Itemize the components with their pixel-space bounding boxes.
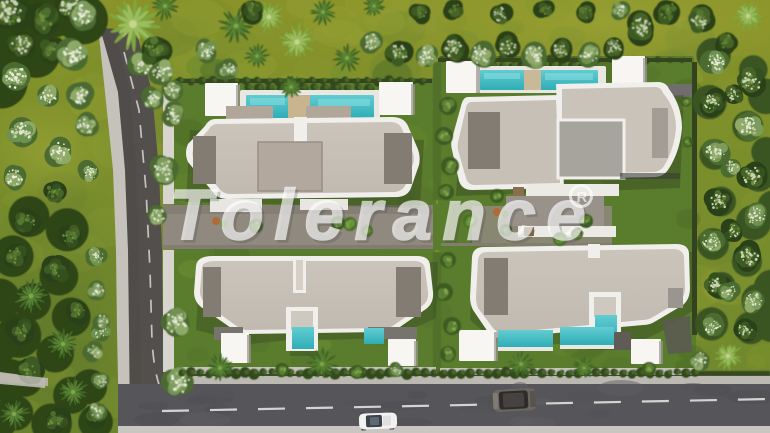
svg-text:Tolerance: Tolerance	[169, 177, 596, 256]
svg-text:R: R	[577, 189, 588, 206]
